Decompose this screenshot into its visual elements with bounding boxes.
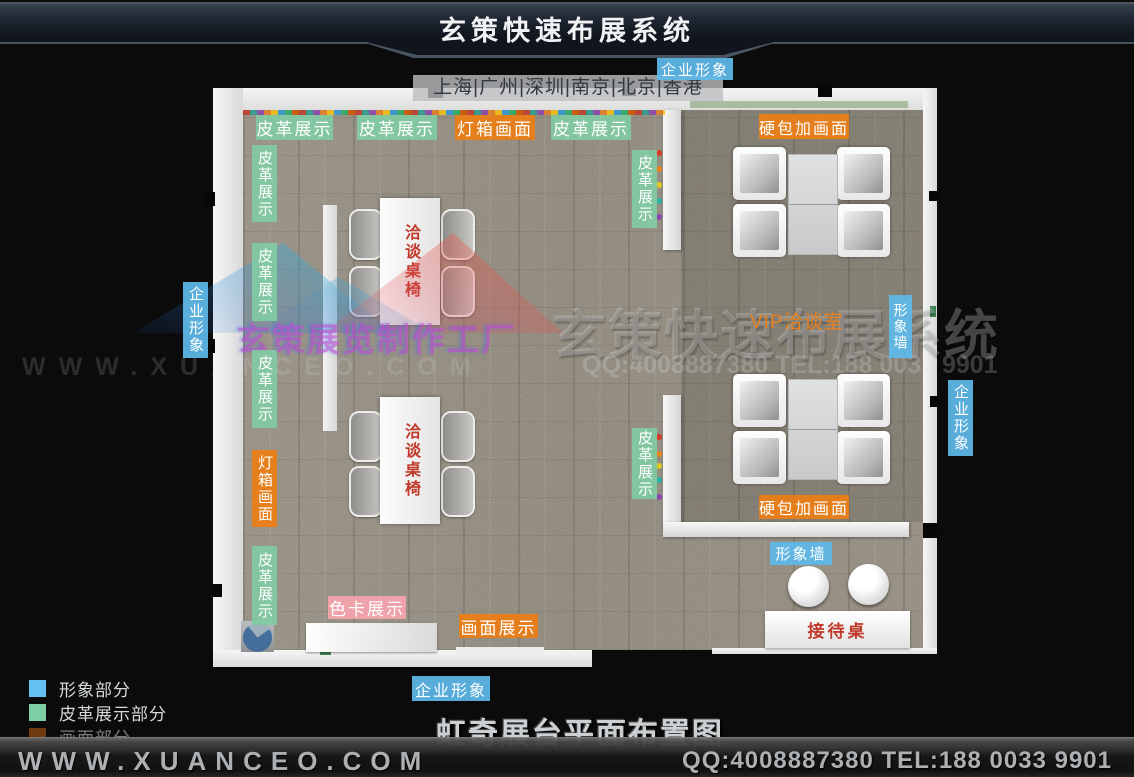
chair: [349, 411, 383, 462]
picture-stand: [456, 647, 544, 654]
vip-coffee-table: [788, 379, 838, 480]
vip-wall-sample-strip: [690, 101, 908, 108]
vip-sofa: [733, 374, 786, 427]
label-corporate-image: 企业形象: [948, 380, 973, 456]
label-lightbox-picture: 灯箱画面: [252, 450, 277, 527]
label-leather-display: 皮革展示: [632, 150, 657, 228]
anchor-tick: [204, 192, 215, 206]
vip-sofa: [837, 204, 890, 257]
label-lightbox-picture: 灯箱画面: [455, 115, 535, 140]
colorcard-counter: [306, 623, 437, 652]
label-leather-display: 皮革展示: [357, 115, 437, 140]
vip-sofa: [733, 431, 786, 484]
legend-label: 形象部分: [59, 676, 131, 701]
label-picture-display: 画面展示: [459, 614, 538, 638]
anchor-tick: [212, 584, 222, 597]
label-vip-room: VIP洽谈室: [750, 307, 846, 331]
label-leather-display: 皮革展示: [551, 115, 631, 140]
reception-partition: [663, 522, 909, 537]
legend-swatch-green: [29, 704, 46, 721]
label-leather-display: 皮革展示: [252, 145, 277, 222]
vip-coffee-table: [788, 154, 838, 255]
app-title: 玄策快速布展系统: [0, 9, 1134, 48]
legend-item-leather: 皮革展示部分: [29, 700, 167, 725]
label-colorcard-display: 色卡展示: [328, 596, 406, 619]
label-leather-display: 皮革展示: [252, 546, 277, 625]
wall-bottom-right: [712, 648, 937, 654]
vip-sofa: [733, 147, 786, 200]
vip-partition-bottom: [663, 395, 681, 528]
label-hardpack-picture: 硬包加画面: [759, 114, 849, 139]
label-leather-display: 皮革展示: [252, 350, 277, 428]
reception-stool: [788, 566, 829, 607]
contact-watermark: QQ:4008887380 TEL:188 0033 9901: [582, 351, 998, 380]
anchor-tick: [818, 85, 832, 97]
legend-item-image: 形象部分: [29, 676, 131, 701]
reception-desk: 接待桌: [765, 611, 910, 648]
legend-label: 皮革展示部分: [59, 700, 167, 725]
label-leather-display: 皮革展示: [632, 428, 657, 499]
label-image-wall: 形象墙: [889, 295, 912, 358]
waste-bin: [243, 623, 272, 652]
chair: [441, 466, 475, 517]
label-image-wall: 形象墙: [770, 542, 832, 565]
label-hardpack-picture: 硬包加画面: [759, 495, 849, 519]
label-corporate-image: 企业形象: [412, 676, 490, 701]
negotiation-table-label: 洽谈桌椅: [398, 423, 422, 499]
vip-sofa: [837, 431, 890, 484]
vip-sofa: [837, 374, 890, 427]
reception-desk-label: 接待桌: [808, 617, 868, 642]
legend-swatch-blue: [29, 680, 46, 697]
reception-stool: [848, 564, 889, 605]
anchor-tick: [929, 191, 941, 201]
label-leather-display: 皮革展示: [256, 115, 333, 140]
vip-sofa: [837, 147, 890, 200]
label-leather-display: 皮革展示: [252, 243, 277, 321]
vip-sofa: [733, 204, 786, 257]
footer-website: WWW.XUANCEO.COM: [18, 746, 430, 777]
footer-bar: WWW.XUANCEO.COM QQ:4008887380 TEL:188 00…: [0, 737, 1134, 777]
negotiation-table: 洽谈桌椅: [380, 397, 440, 524]
anchor-tick: [930, 396, 941, 407]
booth-plan-page: 玄策快速布展系统 企业形象 上海|广州|深圳|南京|北京|香港: [0, 0, 1134, 777]
corporate-image-tag-top: 企业形象: [657, 58, 733, 80]
vip-partition-top: [663, 110, 681, 250]
label-corporate-image: 企业形象: [183, 282, 208, 358]
chair: [441, 411, 475, 462]
chair: [349, 466, 383, 517]
right-wall-doorway: [923, 523, 937, 538]
footer-contact: QQ:4008887380 TEL:188 0033 9901: [682, 747, 1112, 775]
